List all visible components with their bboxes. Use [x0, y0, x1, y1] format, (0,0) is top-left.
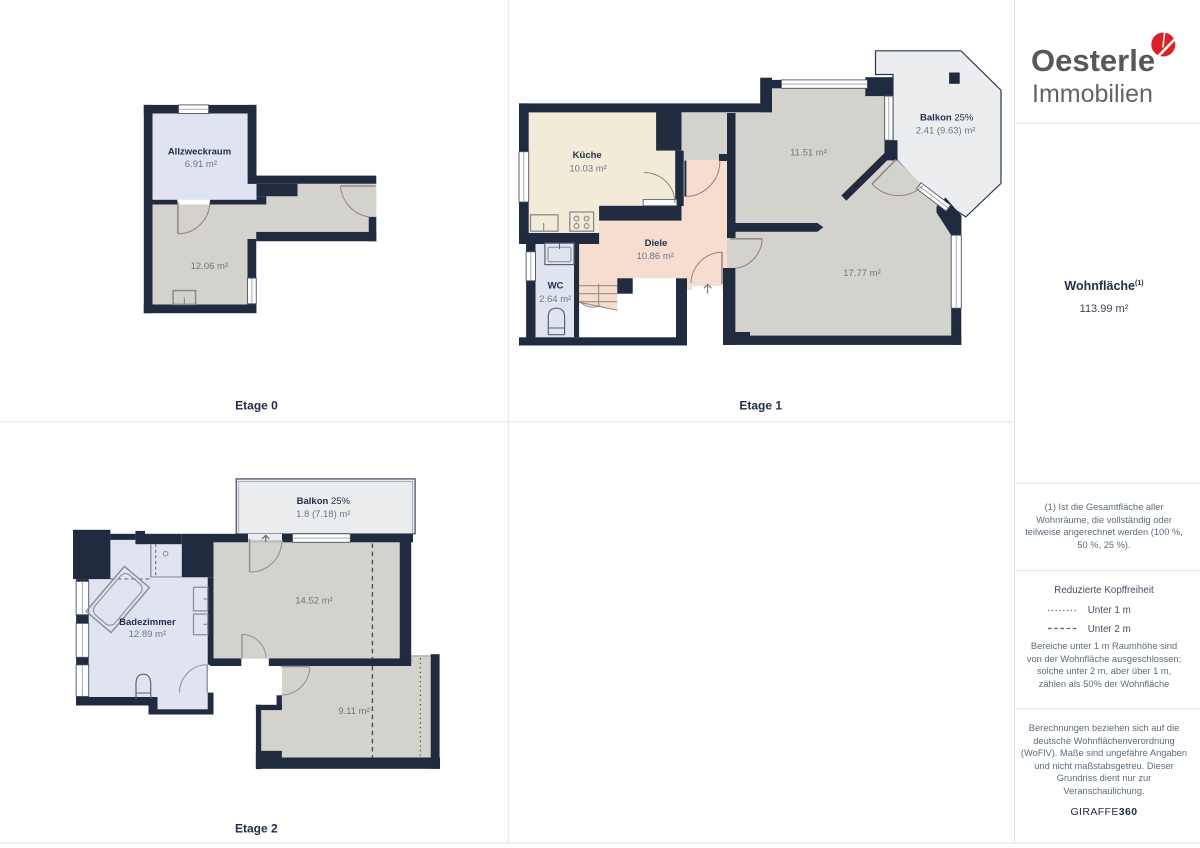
svg-text:6.91 m²: 6.91 m²: [185, 159, 217, 170]
svg-text:Balkon 25%: Balkon 25%: [297, 496, 351, 507]
svg-text:Etage 0: Etage 0: [235, 398, 278, 412]
svg-text:2.64 m²: 2.64 m²: [539, 294, 571, 305]
svg-text:10.86 m²: 10.86 m²: [636, 251, 674, 262]
svg-text:11.51 m²: 11.51 m²: [790, 147, 827, 158]
svg-text:1.8 (7.18) m²: 1.8 (7.18) m²: [296, 509, 350, 520]
svg-text:10.03 m²: 10.03 m²: [569, 164, 607, 175]
svg-text:WC: WC: [548, 281, 564, 292]
svg-text:14.52 m²: 14.52 m²: [295, 595, 333, 606]
svg-text:Badezimmer: Badezimmer: [119, 617, 176, 628]
svg-text:Balkon 25%: Balkon 25%: [920, 113, 974, 124]
svg-text:17.77 m²: 17.77 m²: [843, 268, 881, 279]
svg-text:9.11 m²: 9.11 m²: [338, 706, 370, 717]
svg-text:12.06 m²: 12.06 m²: [191, 261, 229, 272]
svg-text:12.89 m²: 12.89 m²: [129, 629, 167, 640]
svg-text:2.41 (9.63) m²: 2.41 (9.63) m²: [916, 126, 976, 137]
svg-text:Etage 2: Etage 2: [235, 822, 278, 836]
svg-text:Küche: Küche: [573, 150, 602, 161]
svg-text:Allzweckraum: Allzweckraum: [168, 147, 231, 158]
svg-text:Etage 1: Etage 1: [739, 398, 782, 412]
svg-text:Diele: Diele: [645, 238, 668, 249]
